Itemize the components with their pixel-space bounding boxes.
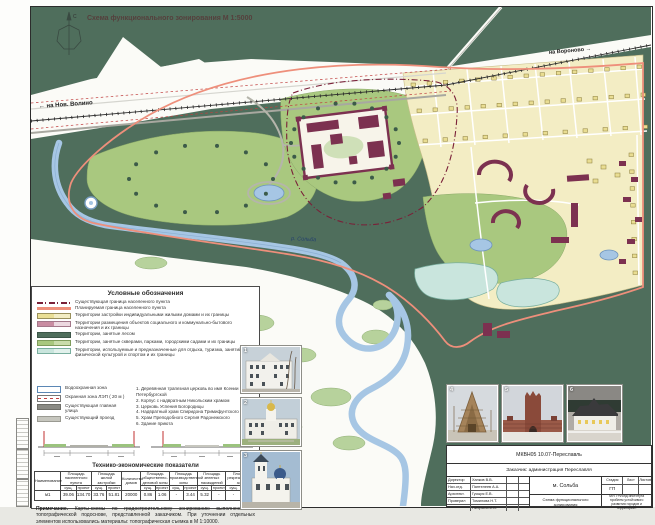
client: Заказчик: администрация Переславля [447, 464, 651, 477]
sheet-value [623, 485, 639, 494]
photo-number: 4 [450, 387, 453, 393]
legend-swatch-parks [37, 340, 71, 346]
photo-2: 2 [240, 397, 302, 447]
col-houses: Количество домов [122, 472, 141, 491]
photo-4: 4 [446, 384, 499, 443]
road-cross-sections [36, 427, 255, 459]
legend-swatch-drive [37, 416, 61, 422]
organization: МУП «Фонд института проблем устойчивого … [602, 495, 651, 511]
signer-row: Пичугина И.В. [447, 505, 529, 511]
photo-number: 5 [505, 387, 508, 393]
signers-block: ДиректорХапков В.В. Нач.отд.Пантелеев А.… [447, 477, 530, 508]
legend-swatch-recreation [37, 348, 71, 354]
drawing-sheet: С Схема функционального зонирования М 1:… [0, 0, 655, 507]
sheets-value [639, 485, 651, 494]
photo-1: 1 [240, 345, 302, 394]
photo-5: 5 [501, 384, 564, 443]
photo-6-image [568, 386, 621, 441]
road-cross-section-1 [36, 427, 142, 459]
object-name: м. Сольба [530, 477, 602, 495]
legend-swatch-power-line [37, 395, 61, 402]
spring [89, 201, 93, 205]
tep-table-title: Технико-экономические показатели [32, 463, 259, 469]
stage-value: ГП [602, 485, 623, 494]
signer-row: ПроверилТомилова Н.Т. [447, 498, 529, 505]
drawing-name: Схема функционального зонирования [530, 495, 602, 508]
monastery-compound [295, 106, 394, 181]
landmark-list: 1. Деревянная трапезная церковь во имя К… [136, 386, 256, 427]
tep-table: Наименование Площадь населенного пункта … [34, 471, 257, 501]
title-block: МКВН05 10.07-Переславль Заказчик: админи… [446, 445, 652, 507]
photo-number: 3 [244, 453, 247, 459]
col-industrial-area: Площадь производственной зоны [169, 472, 197, 486]
photo-3: 3 [240, 450, 302, 510]
signer-row: Архитект.Гусыря Е.В. [447, 491, 529, 498]
legend-swatch-residential [37, 313, 71, 319]
legend-swatch-social [37, 321, 71, 327]
legend-swatch-boundary-planned [37, 307, 71, 310]
pond [470, 239, 492, 251]
photo-2-image [242, 399, 300, 445]
project-code: МКВН05 10.07-Переславль [447, 446, 651, 464]
legend-lower-group: Водоохранная зона Охранная зона ЛЭП ( 20… [37, 384, 133, 423]
margin-stamp-box [16, 478, 29, 507]
photo-number: 1 [244, 348, 247, 354]
margin-stamp-box [16, 418, 29, 450]
pond [600, 250, 618, 260]
pond [254, 185, 284, 201]
legend-swatch-main-street [37, 404, 61, 410]
note: Примечание. Карты-схемы по градостроител… [36, 506, 255, 525]
table-row: м1 39.06134.70 33.7651.81 20000 0.861.06… [35, 491, 257, 501]
photo-1-image [242, 347, 300, 392]
photo-3-image [242, 452, 300, 508]
col-settlement-area: Площадь населенного пункта [61, 472, 91, 486]
col-public-area: Площадь общественно-деловой зоны [141, 472, 169, 486]
signer-row: Нач.отд.Пантелеев А.А. [447, 484, 529, 491]
legend-swatch-boundary-existing [37, 302, 71, 304]
photo-number: 6 [570, 387, 573, 393]
margin-stamp-box [16, 448, 29, 480]
legend-swatch-water-protect [37, 386, 61, 393]
photo-4-image [448, 386, 497, 441]
map-title: Схема функционального зонирования М 1:50… [87, 15, 252, 22]
col-name: Наименование [35, 472, 61, 491]
stage-grid: Стадия Лист Листов ГП [602, 477, 651, 495]
photo-6: 6 [566, 384, 623, 443]
col-residential-area: Площадь жилой застройки [91, 472, 121, 486]
landmark-item: 1. Деревянная трапезная церковь во имя К… [136, 386, 256, 398]
signer-row: ДиректорХапков В.В. [447, 477, 529, 484]
legend-swatch-forest [37, 332, 71, 338]
compass-label: С [73, 14, 77, 20]
photo-number: 2 [244, 400, 247, 406]
legend-panel: Условные обозначения Существующая границ… [31, 286, 260, 509]
photo-5-image [503, 386, 562, 441]
legend-title: Условные обозначения [32, 290, 259, 297]
